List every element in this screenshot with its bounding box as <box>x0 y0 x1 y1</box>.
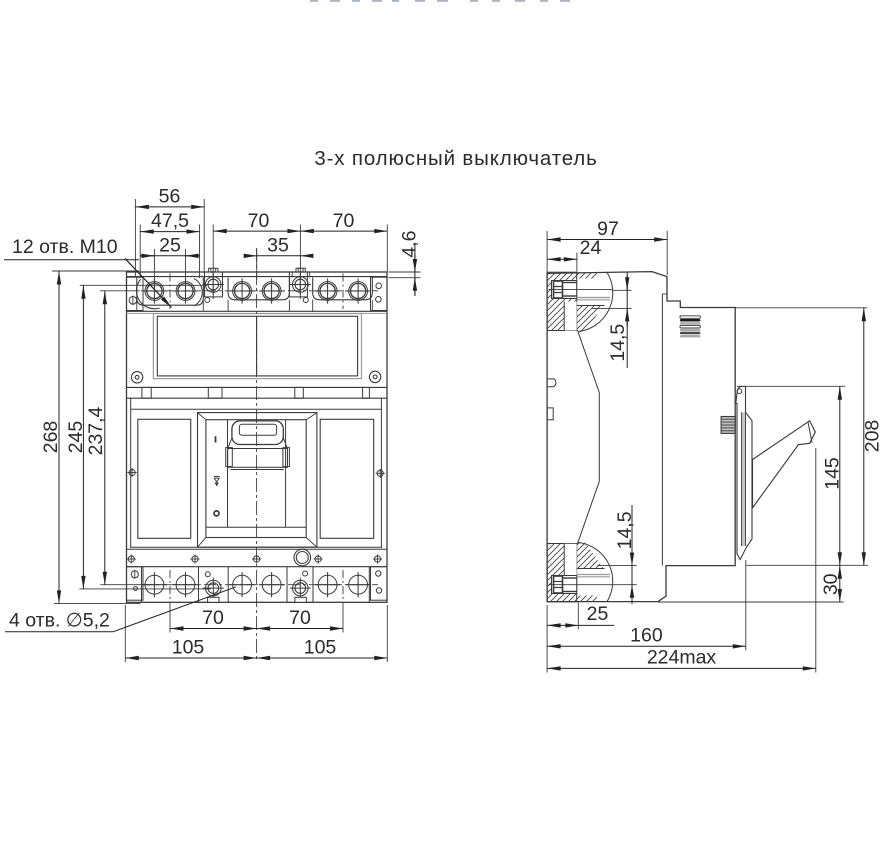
svg-text:224max: 224max <box>647 647 717 669</box>
svg-text:160: 160 <box>630 625 663 647</box>
svg-text:4 отв. ∅5,2: 4 отв. ∅5,2 <box>9 610 110 632</box>
svg-text:47,5: 47,5 <box>151 210 189 232</box>
svg-text:105: 105 <box>304 637 337 659</box>
svg-text:4,6: 4,6 <box>399 231 421 258</box>
svg-text:268: 268 <box>40 421 62 454</box>
svg-text:56: 56 <box>159 186 181 208</box>
svg-text:30: 30 <box>820 573 842 595</box>
svg-text:208: 208 <box>862 420 884 453</box>
svg-text:105: 105 <box>172 637 205 659</box>
svg-text:70: 70 <box>248 210 270 232</box>
svg-text:245: 245 <box>65 421 87 454</box>
svg-text:14,5: 14,5 <box>614 511 636 549</box>
svg-text:70: 70 <box>202 607 224 629</box>
svg-text:70: 70 <box>333 210 355 232</box>
svg-text:35: 35 <box>267 235 289 257</box>
svg-text:145: 145 <box>822 457 844 490</box>
svg-text:14,5: 14,5 <box>607 324 629 362</box>
svg-text:12 отв. М10: 12 отв. М10 <box>12 236 118 258</box>
svg-text:237,4: 237,4 <box>85 406 107 455</box>
svg-text:25: 25 <box>587 603 609 625</box>
svg-text:70: 70 <box>289 607 311 629</box>
svg-text:25: 25 <box>159 235 181 257</box>
svg-text:24: 24 <box>580 237 602 259</box>
svg-text:3-х полюсный выключатель: 3-х полюсный выключатель <box>314 147 597 170</box>
